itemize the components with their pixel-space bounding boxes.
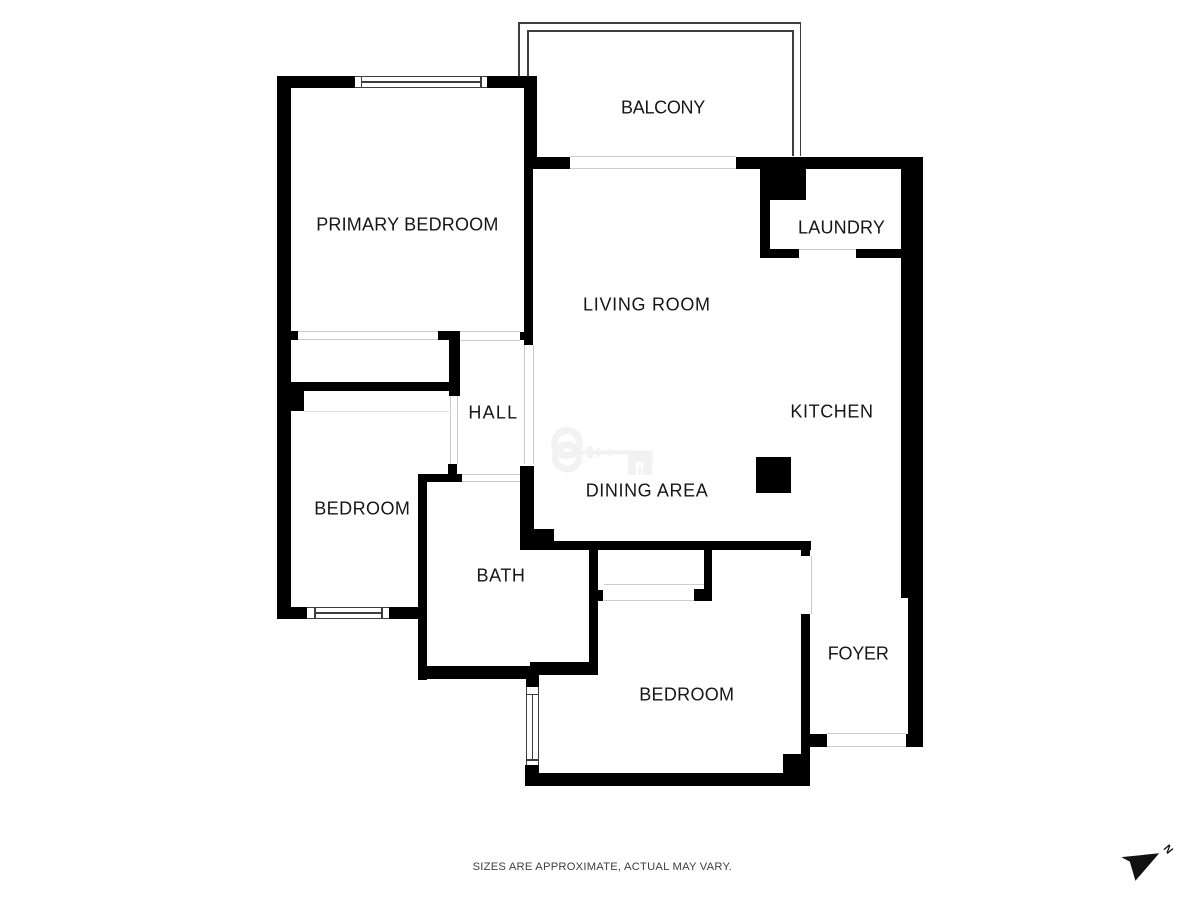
svg-text:N: N xyxy=(1161,843,1175,857)
